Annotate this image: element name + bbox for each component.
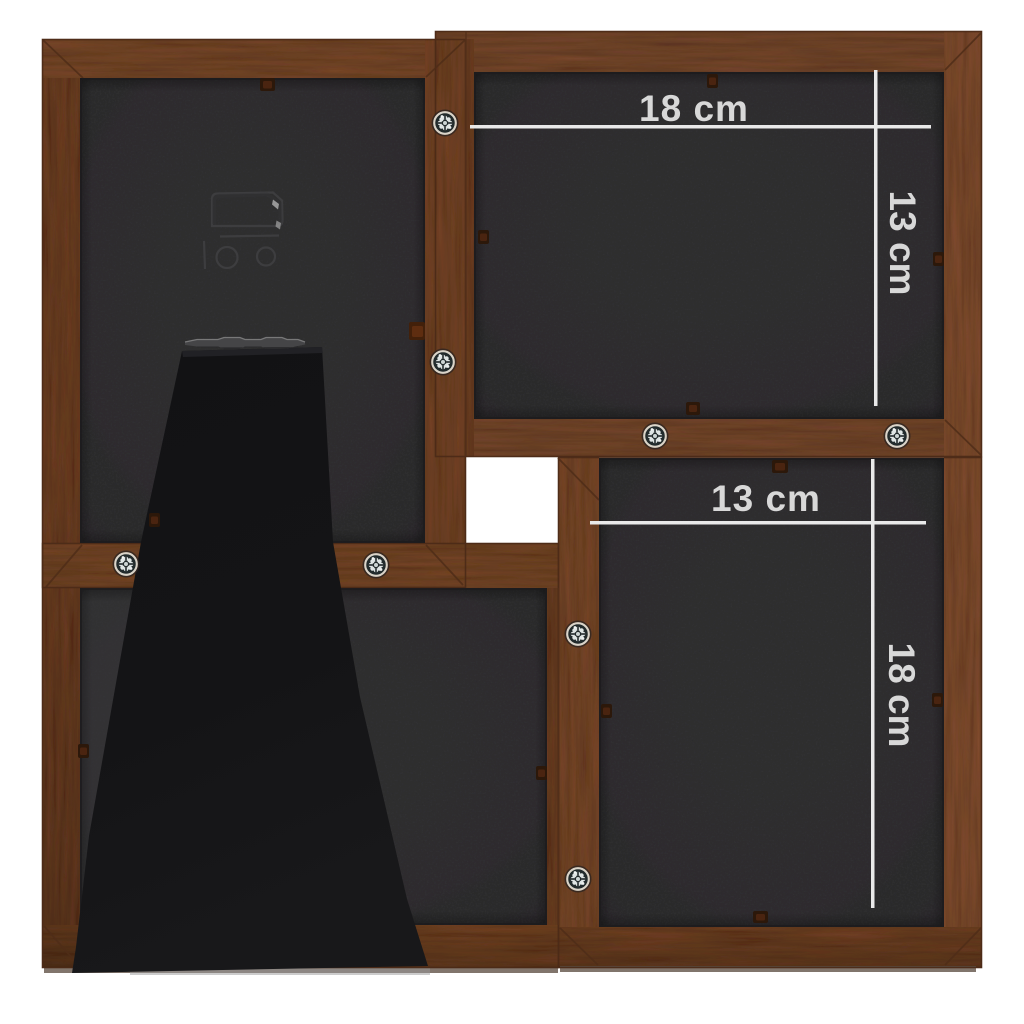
svg-text:13 cm: 13 cm	[882, 191, 923, 296]
svg-text:18 cm: 18 cm	[639, 88, 749, 129]
svg-text:13 cm: 13 cm	[711, 478, 821, 519]
svg-text:18 cm: 18 cm	[881, 643, 922, 748]
